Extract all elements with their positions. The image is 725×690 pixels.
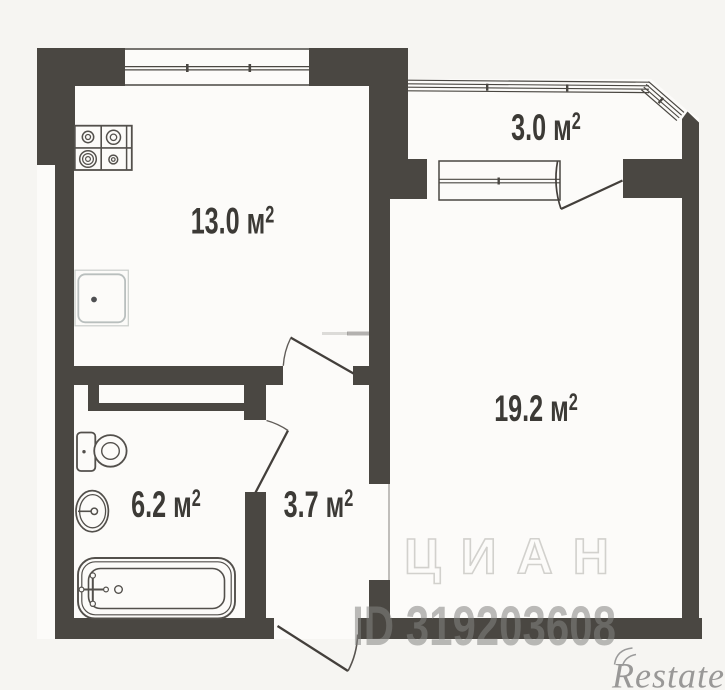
svg-text:6.2 м2: 6.2 м2 — [131, 483, 201, 525]
svg-text:ЦИАН: ЦИАН — [404, 529, 629, 585]
svg-text:Restate: Restate — [611, 656, 725, 690]
svg-text:13.0 м2: 13.0 м2 — [191, 200, 275, 242]
svg-text:3.7 м2: 3.7 м2 — [284, 483, 354, 525]
svg-text:3.0 м2: 3.0 м2 — [511, 106, 581, 148]
svg-text:ID 319203608: ID 319203608 — [352, 595, 616, 657]
svg-text:19.2 м2: 19.2 м2 — [494, 387, 578, 429]
